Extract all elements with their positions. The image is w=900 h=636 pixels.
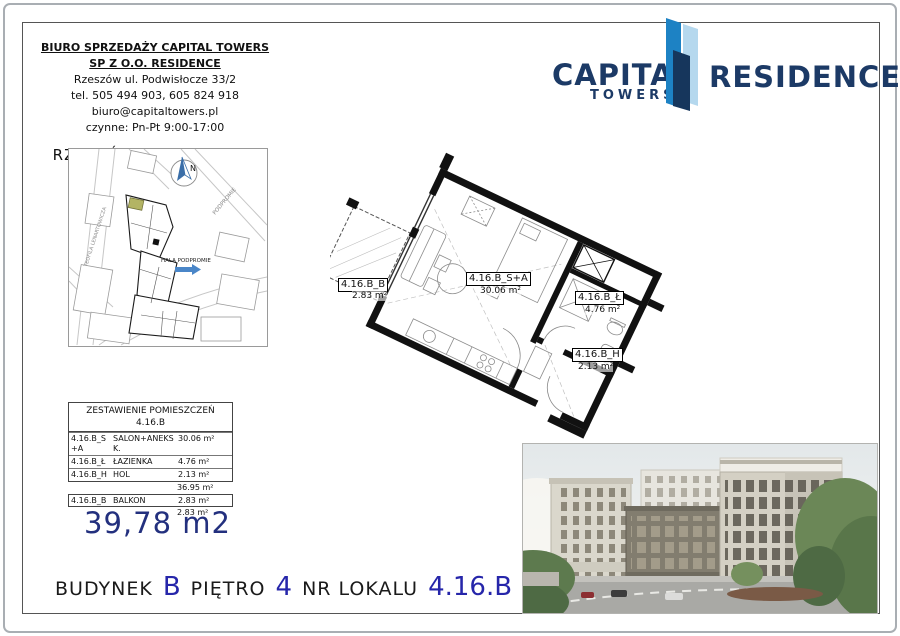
table-row: 4.16.B_Ł ŁAZIENKA 4.76 m² <box>68 455 233 468</box>
floor-value: 4 <box>276 572 293 602</box>
unit-identification: BUDYNEK B PIĘTRO 4 NR LOKALU 4.16.B <box>55 572 512 602</box>
cell-area: 30.06 m² <box>176 432 232 455</box>
cell-code: 4.16.B_B <box>69 495 111 506</box>
car-dark <box>611 590 627 597</box>
office-address: Rzeszów ul. Podwisłocze 33/2 <box>30 72 280 88</box>
table-row: 4.16.B_H HOL 2.13 m² <box>68 468 233 482</box>
building-rendering-drawing <box>523 444 877 613</box>
building-value: B <box>163 572 181 602</box>
cell-area: 4.76 m² <box>176 455 232 468</box>
room-label-lazienka: 4.16.B_Ł <box>575 291 624 305</box>
compass-n-label: N <box>190 164 196 173</box>
office-phone: tel. 505 494 903, 605 824 918 <box>30 88 280 104</box>
map-direction-arrow <box>175 264 201 275</box>
office-email: biuro@capitaltowers.pl <box>30 104 280 120</box>
cell-area: 2.83 m² <box>176 495 232 506</box>
office-hours: czynne: Pn-Pt 9:00-17:00 <box>30 120 280 136</box>
site-map-drawing: N TEOFILA LENARTOWICZA PODPROMIE HALA PO… <box>69 149 267 346</box>
exterior-walls <box>360 153 680 440</box>
room-label-balkon: 4.16.B_B <box>338 278 388 292</box>
room-label-salon: 4.16.B_S+A <box>466 272 531 286</box>
capital-towers-logo: CAPITAL TOWERS RESIDENCE <box>546 14 876 114</box>
building-rendering <box>522 443 878 614</box>
cell-code: 4.16.B_Ł <box>69 455 111 468</box>
room-area-hol: 2.13 m² <box>578 362 613 372</box>
cell-name: SALON+ANEKS K. <box>111 432 176 455</box>
room-area-balkon: 2.83 m² <box>352 291 387 301</box>
compass-rose: N <box>171 157 197 186</box>
table-subtitle: 4.16.B <box>69 417 232 429</box>
total-area: 39,78 m2 <box>84 506 231 540</box>
map-marker <box>152 238 159 245</box>
office-name-line1: BIURO SPRZEDAŻY CAPITAL TOWERS <box>30 40 280 56</box>
room-label-hol: 4.16.B_H <box>572 348 623 362</box>
offer-page: BIURO SPRZEDAŻY CAPITAL TOWERS SP Z O.O.… <box>0 0 900 636</box>
unit-label: NR LOKALU <box>302 578 418 600</box>
table-header: ZESTAWIENIE POMIESZCZEŃ 4.16.B <box>68 402 233 432</box>
building-label: BUDYNEK <box>55 578 153 600</box>
room-summary-table: ZESTAWIENIE POMIESZCZEŃ 4.16.B 4.16.B_S+… <box>68 402 233 518</box>
floor-label: PIĘTRO <box>191 578 266 600</box>
street-label-podpromie: PODPROMIE <box>212 187 238 217</box>
site-map: N TEOFILA LENARTOWICZA PODPROMIE HALA PO… <box>68 148 268 347</box>
car-light <box>665 593 683 600</box>
tower-icon <box>654 16 706 112</box>
car-red <box>581 592 594 598</box>
subtotal-value: 36.95 m² <box>175 482 231 493</box>
office-name-line2: SP Z O.O. RESIDENCE <box>30 56 280 72</box>
room-area-salon: 30.06 m² <box>480 286 521 296</box>
table-row: 4.16.B_S+A SALON+ANEKS K. 30.06 m² <box>68 432 233 455</box>
cell-code: 4.16.B_S+A <box>69 432 111 455</box>
unit-value: 4.16.B <box>428 572 512 602</box>
building-mid <box>624 506 722 584</box>
hala-podpromie-label: HALA PODPROMIE <box>161 258 211 264</box>
cell-name: ŁAZIENKA <box>111 455 176 468</box>
table-subtotal-row: 36.95 m² <box>68 482 233 493</box>
table-title: ZESTAWIENIE POMIESZCZEŃ <box>69 405 232 417</box>
cell-area: 2.13 m² <box>176 468 232 482</box>
logo-residence-text: RESIDENCE <box>709 60 900 94</box>
cell-code: 4.16.B_H <box>69 468 111 482</box>
cell-name: HOL <box>111 468 176 482</box>
room-area-lazienka: 4.76 m² <box>585 305 620 315</box>
cell-name: BALKON <box>111 495 176 506</box>
